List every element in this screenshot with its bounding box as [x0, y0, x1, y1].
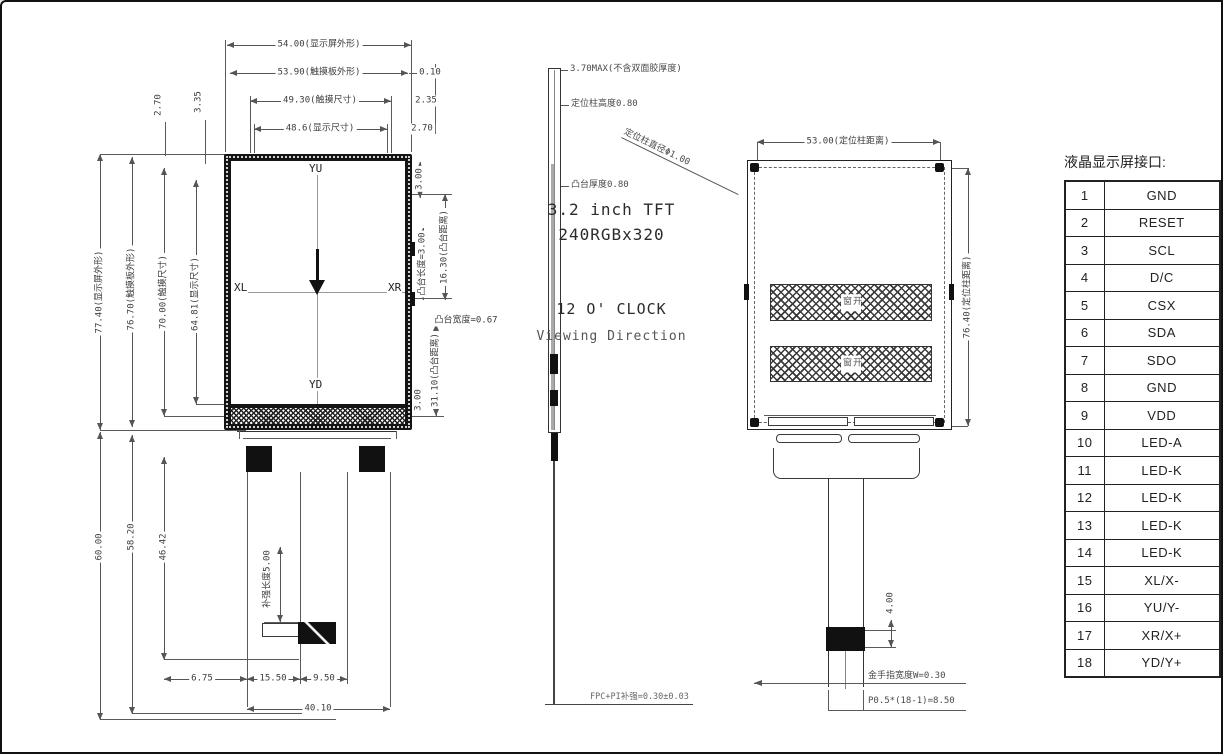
dim-label-boss-width: 凸台宽度=0.67	[432, 316, 499, 327]
stiffener-pad-left	[246, 446, 272, 472]
pin-number: 16	[1065, 594, 1104, 622]
stiffener-pad-right	[359, 446, 385, 472]
ext-line	[164, 659, 299, 660]
ext-line	[100, 430, 246, 431]
open-window-lower: 开窗	[770, 346, 932, 382]
pin-name: RESET	[1104, 209, 1220, 237]
dim-label-touch-width: 49.30(触摸尺寸)	[281, 96, 359, 107]
dim-label-tp-width: 53.90(触摸板外形)	[276, 68, 363, 79]
note-gold-finger: 金手指宽度W=0.30	[868, 671, 946, 682]
ext-line	[411, 40, 412, 152]
pin-name: GND	[1104, 374, 1220, 402]
pin-name: LED-K	[1104, 539, 1220, 567]
screen-clock-text: 12 O' CLOCK	[556, 300, 666, 318]
viewing-arrow-head	[309, 280, 325, 295]
ext-line	[165, 122, 166, 156]
pin-row: 6SDA	[1065, 319, 1220, 347]
axis-label-xr: XR	[387, 281, 402, 294]
fpc-shoulder	[773, 448, 920, 479]
leader-arrow	[754, 680, 762, 686]
pin-row: 13LED-K	[1065, 512, 1220, 540]
pin-row: 5CSX	[1065, 292, 1220, 320]
open-window-upper: 开窗	[770, 284, 932, 321]
fpc-edge	[239, 431, 240, 439]
pin-number: 3	[1065, 237, 1104, 265]
pin-number: 13	[1065, 512, 1104, 540]
pad-row-line	[764, 415, 936, 416]
open-window-label: 开窗	[841, 356, 861, 373]
locating-post	[750, 418, 759, 427]
fpc-pad-bar	[776, 434, 842, 443]
connector-block-front	[298, 622, 336, 644]
pin-row: 12LED-K	[1065, 484, 1220, 512]
pin-number: 12	[1065, 484, 1104, 512]
dim-label-touch-height: 70.00(触摸尺寸)	[159, 253, 170, 331]
dim-line-stiffener	[280, 547, 281, 622]
pin-name: SDO	[1104, 347, 1220, 375]
side-view-mark	[550, 390, 558, 406]
dim-line-400	[891, 620, 892, 647]
pin-name: XL/X-	[1104, 567, 1220, 595]
note-pitch: P0.5*(18-1)=8.50	[868, 696, 955, 707]
fpc-outline	[390, 472, 391, 707]
pin-row: 15XL/X-	[1065, 567, 1220, 595]
fpc-pad-bar	[848, 434, 920, 443]
dim-label-outline-height: 77.40(显示屏外形)	[95, 249, 106, 336]
dim-line-6000	[100, 432, 101, 720]
ext-line	[757, 142, 758, 162]
pin-name: YD/Y+	[1104, 649, 1220, 677]
fpc-tail-outline-back	[828, 479, 829, 687]
pin-row: 16YU/Y-	[1065, 594, 1220, 622]
ext-line	[347, 650, 348, 684]
pin-number: 2	[1065, 209, 1104, 237]
pin-table-section: 液晶显示屏接口: 1GND2RESET3SCL4D/C5CSX6SDA7SDO8…	[1064, 152, 1221, 678]
pin-number: 10	[1065, 429, 1104, 457]
pin-name: LED-A	[1104, 429, 1220, 457]
connector-block-back	[826, 627, 865, 651]
ext-line	[863, 690, 864, 710]
dim-label-gap-335: 3.35	[194, 89, 205, 115]
open-window-label: 开窗	[841, 294, 861, 312]
pin-number: 11	[1065, 457, 1104, 485]
pin-name: LED-K	[1104, 512, 1220, 540]
pin-number: 5	[1065, 292, 1104, 320]
dim-label-boss-distance-3110: 31.10(凸台距离)	[431, 331, 442, 409]
locating-post	[935, 418, 944, 427]
pin-name: SCL	[1104, 237, 1220, 265]
fpc-tail-outline-back	[863, 479, 864, 687]
pin-number: 8	[1065, 374, 1104, 402]
contact-pad	[768, 417, 848, 426]
side-view-baseline	[545, 704, 693, 705]
dim-label-6000: 60.00	[95, 531, 106, 562]
tail-notch	[262, 623, 300, 637]
fpc-edge	[396, 431, 397, 439]
pin-number: 17	[1065, 622, 1104, 650]
fpc-tail-outline	[347, 472, 348, 650]
dim-label-display-height: 64.81(显示尺寸)	[191, 255, 202, 333]
ext-line	[225, 40, 226, 152]
axis-label-yd: YD	[308, 378, 323, 391]
dim-label-post-distance-h: 53.00(定位柱距离)	[805, 137, 892, 148]
ext-line	[164, 416, 232, 417]
pin-name: VDD	[1104, 402, 1220, 430]
ext-line	[387, 124, 388, 153]
pin-row: 1GND	[1065, 181, 1220, 209]
pin-number: 1	[1065, 181, 1104, 209]
axis-label-xl: XL	[233, 281, 248, 294]
dim-label-offset-235: 2.35	[413, 96, 439, 107]
pin-row: 18YD/Y+	[1065, 649, 1220, 677]
ext-line	[100, 719, 336, 720]
ext-line	[412, 416, 444, 417]
ext-line	[391, 96, 392, 153]
dim-label-offset-270: 2.70	[409, 124, 435, 135]
pin-name: XR/X+	[1104, 622, 1220, 650]
viewing-arrow-shaft	[316, 249, 319, 281]
dim-label-300-top: 3.00	[415, 166, 426, 192]
contact-pad	[854, 417, 934, 426]
pin-table-title: 液晶显示屏接口:	[1064, 152, 1221, 172]
side-view-layer-line	[554, 70, 555, 430]
dim-label-display-width: 48.6(显示尺寸)	[284, 124, 357, 135]
boss-mark	[410, 292, 415, 306]
pin-row: 11LED-K	[1065, 457, 1220, 485]
ext-line	[205, 120, 206, 164]
dim-label-boss-distance-1630: 16.30(凸台距离)	[440, 208, 451, 286]
screen-size-text: 3.2 inch TFT	[548, 200, 676, 219]
pin-number: 6	[1065, 319, 1104, 347]
edge-mark	[949, 284, 954, 300]
dim-line-5820	[132, 435, 133, 714]
pin-name: CSX	[1104, 292, 1220, 320]
fpc-edge	[237, 431, 397, 432]
dim-label-1550: 15.50	[257, 674, 288, 685]
dim-label-stiffener: 补强长度5.00	[263, 548, 274, 610]
pin-table-body: 1GND2RESET3SCL4D/C5CSX6SDA7SDO8GND9VDD10…	[1065, 181, 1220, 677]
ext-line	[952, 426, 968, 427]
pin-name: GND	[1104, 181, 1220, 209]
note-post-height: 定位柱高度0.80	[571, 99, 638, 110]
pin-table: 1GND2RESET3SCL4D/C5CSX6SDA7SDO8GND9VDD10…	[1064, 180, 1221, 678]
fpc-edge	[243, 438, 391, 439]
ext-line	[940, 142, 941, 162]
pin-name: YU/Y-	[1104, 594, 1220, 622]
side-view-fpc-bend	[551, 433, 558, 461]
ext-line	[132, 713, 302, 714]
ext-line	[250, 96, 251, 153]
pin-number: 18	[1065, 649, 1104, 677]
screen-resolution-text: 240RGBx320	[558, 225, 664, 244]
pin-name: SDA	[1104, 319, 1220, 347]
axis-label-yu: YU	[308, 162, 323, 175]
dim-label-gap-270: 2.70	[154, 92, 165, 118]
dim-label-boss-length: 凸台长度=3.00	[418, 230, 429, 297]
mechanical-drawing: 54.00(显示屏外形) 53.90(触摸板外形) 0.10 49.30(触摸尺…	[0, 0, 1223, 754]
edge-mark	[744, 284, 749, 300]
pin-row: 9VDD	[1065, 402, 1220, 430]
pin-name: D/C	[1104, 264, 1220, 292]
side-view-fpc-tail	[553, 461, 555, 704]
pin-row: 7SDO	[1065, 347, 1220, 375]
fpc-outline	[247, 472, 248, 707]
pin-name: LED-K	[1104, 457, 1220, 485]
dim-label-post-distance-v: 76.40(定位柱距离)	[963, 254, 974, 341]
pin-row: 10LED-A	[1065, 429, 1220, 457]
dim-label-675: 6.75	[189, 674, 215, 685]
dim-label-300-bottom: 3.00	[414, 387, 425, 413]
dim-label-400: 4.00	[886, 590, 897, 616]
screen-direction-text: Viewing Direction	[536, 329, 686, 344]
dim-label-4642: 46.42	[159, 531, 170, 562]
ext-line	[828, 690, 829, 710]
locating-post	[935, 163, 944, 172]
dim-label-outline-width: 54.00(显示屏外形)	[276, 40, 363, 51]
pin-row: 4D/C	[1065, 264, 1220, 292]
ext-line	[864, 647, 896, 648]
pin-number: 15	[1065, 567, 1104, 595]
bottom-bezel-hatch	[231, 408, 405, 424]
note-thickness: 3.70MAX(不含双面胶厚度)	[570, 64, 682, 75]
dim-label-950: 9.50	[311, 674, 337, 685]
pin-row: 14LED-K	[1065, 539, 1220, 567]
pin-row: 8GND	[1065, 374, 1220, 402]
ext-line	[100, 154, 225, 155]
note-post-diameter: 定位柱直径Φ1.00	[622, 127, 691, 168]
pin-number: 14	[1065, 539, 1104, 567]
pin-row: 17XR/X+	[1065, 622, 1220, 650]
boss-mark	[410, 242, 415, 256]
leader-line	[828, 710, 966, 711]
dim-label-tp-height: 76.70(触摸板外形)	[127, 246, 138, 333]
locating-post	[750, 163, 759, 172]
dim-label-offset-010: 0.10	[417, 68, 443, 79]
dim-label-4010: 40.10	[302, 704, 333, 715]
pin-row: 3SCL	[1065, 237, 1220, 265]
side-view-mark	[550, 354, 558, 374]
dim-label-5820: 58.20	[127, 521, 138, 552]
note-boss-thickness: 凸台厚度0.80	[571, 180, 629, 191]
pin-name: LED-K	[1104, 484, 1220, 512]
pin-number: 7	[1065, 347, 1104, 375]
leader-line	[560, 186, 569, 187]
leader-line	[560, 70, 568, 71]
leader-line	[754, 683, 966, 684]
note-fpc-stackup: FPC+PI补强=0.30±0.03	[590, 692, 689, 703]
pin-number: 4	[1065, 264, 1104, 292]
pin-number: 9	[1065, 402, 1104, 430]
pin-row: 2RESET	[1065, 209, 1220, 237]
